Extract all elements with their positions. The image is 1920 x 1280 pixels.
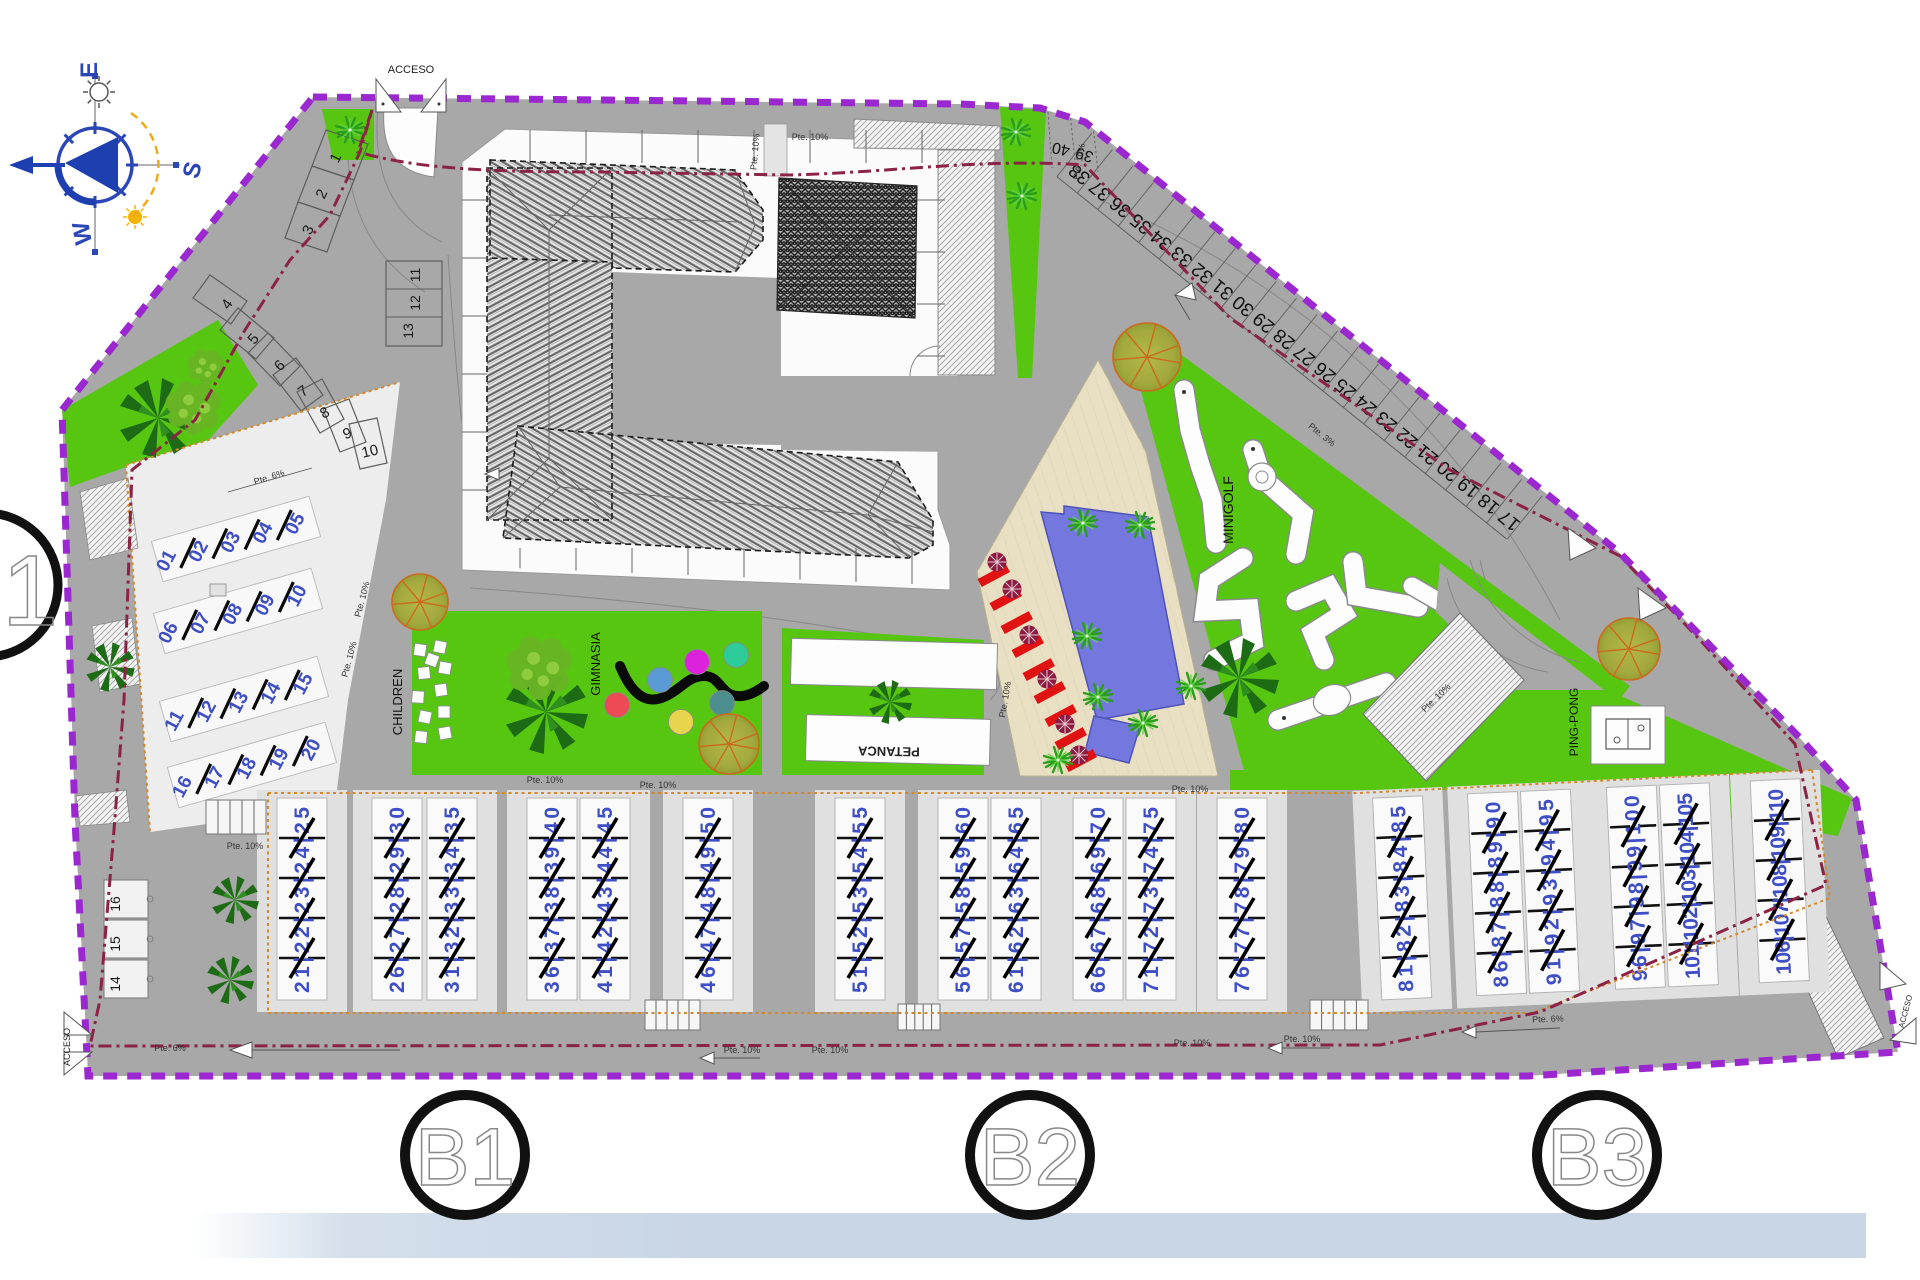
svg-text:Pte. 6%: Pte. 6%: [1532, 1013, 1564, 1024]
svg-text:Pte. 10%: Pte. 10%: [792, 132, 829, 142]
svg-text:GIMNASIA: GIMNASIA: [588, 632, 603, 696]
svg-text:12: 12: [407, 295, 423, 311]
svg-text:40: 40: [1050, 138, 1071, 158]
svg-text:Pte. 10%: Pte. 10%: [227, 841, 264, 851]
svg-text:Pte. 10%: Pte. 10%: [1174, 1038, 1211, 1048]
svg-text:14: 14: [107, 976, 123, 992]
svg-text:PING-PONG: PING-PONG: [1567, 688, 1581, 757]
svg-text:15: 15: [107, 936, 123, 952]
svg-text:ACCESO: ACCESO: [62, 1028, 72, 1066]
svg-text:B3: B3: [1547, 1112, 1647, 1203]
svg-text:MINIGOLF: MINIGOLF: [1220, 476, 1236, 544]
svg-text:B2: B2: [980, 1112, 1080, 1203]
svg-text:E: E: [76, 62, 103, 78]
svg-text:13: 13: [400, 323, 416, 339]
svg-text:CHILDREN: CHILDREN: [390, 669, 405, 735]
svg-text:11: 11: [407, 268, 423, 283]
svg-text:ACCESO: ACCESO: [388, 64, 435, 76]
svg-text:Pte. 6%: Pte. 6%: [154, 1043, 186, 1053]
svg-text:Pte. 10%: Pte. 10%: [527, 775, 564, 785]
svg-text:Pte. 10%: Pte. 10%: [812, 1045, 849, 1055]
svg-text:PETANCA: PETANCA: [857, 743, 920, 759]
svg-text:Pte. 10%: Pte. 10%: [640, 780, 677, 790]
svg-text:Pte. 10%: Pte. 10%: [724, 1045, 761, 1055]
svg-text:1: 1: [2, 535, 58, 647]
svg-text:Pte. 10%: Pte. 10%: [1172, 784, 1209, 794]
svg-text:B1: B1: [415, 1112, 515, 1203]
svg-text:Pte. 10%: Pte. 10%: [1284, 1034, 1321, 1044]
